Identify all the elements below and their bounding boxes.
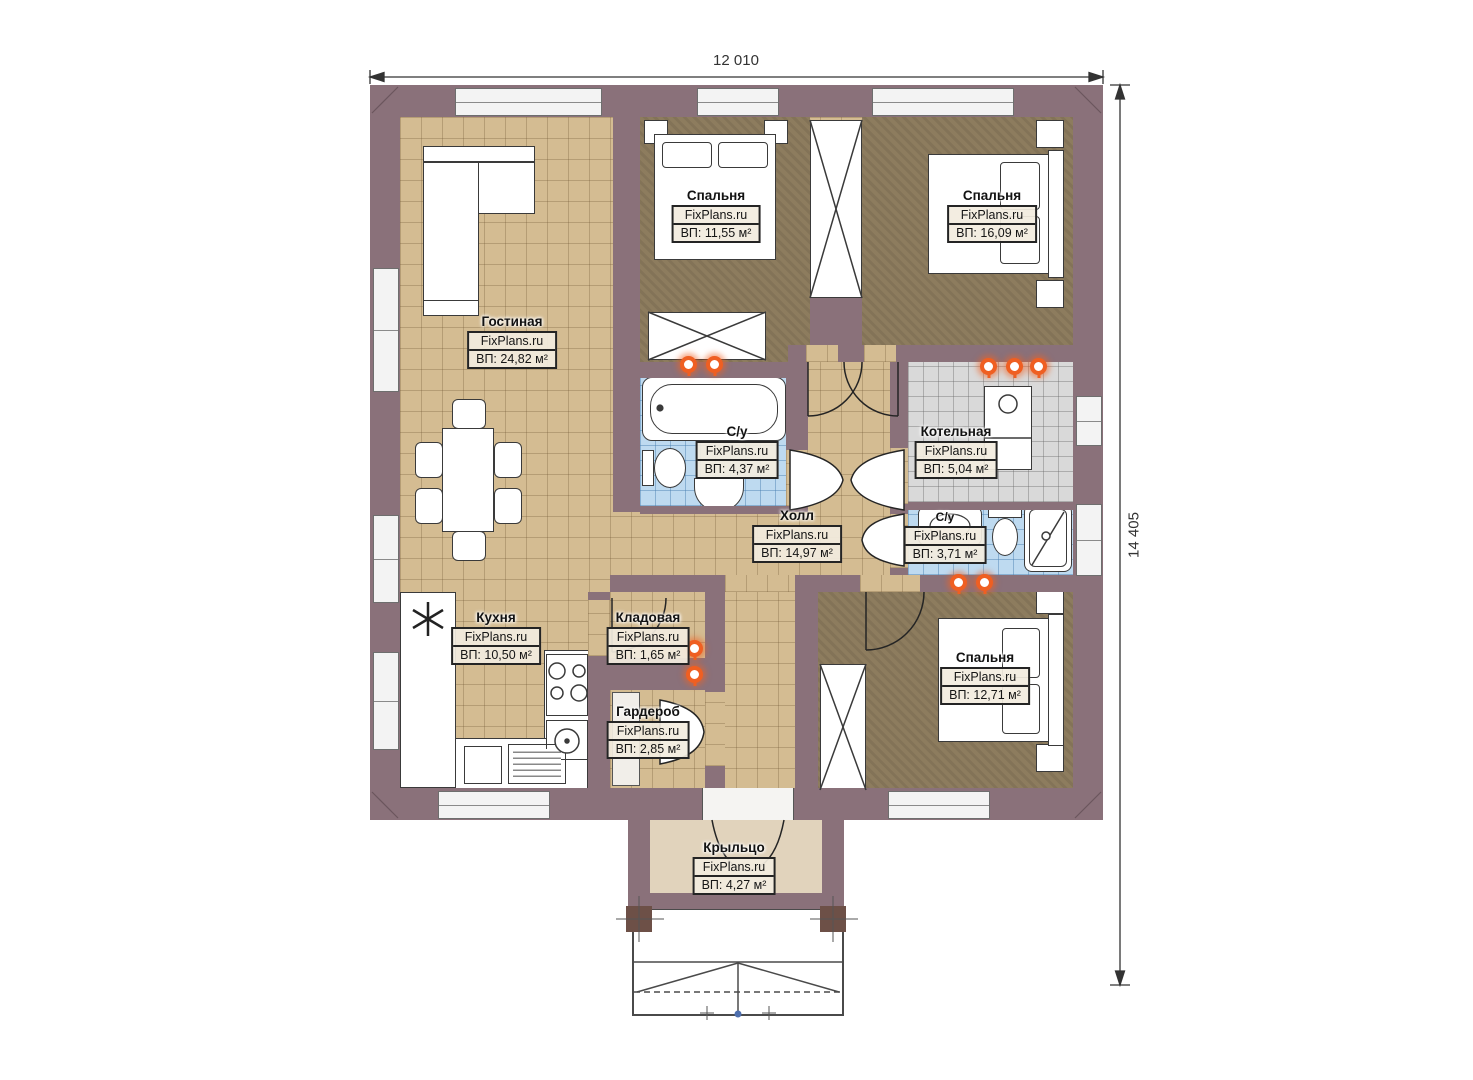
toilet-bowl (992, 518, 1018, 556)
room-name: Кладовая (607, 610, 690, 625)
room-info-box: FixPlans.ru ВП: 4,27 м² (693, 857, 776, 895)
ventilation-shaft (810, 120, 862, 298)
pillow (718, 142, 768, 168)
room-area: ВП: 14,97 м² (754, 543, 840, 561)
wall-exterior-right (1073, 85, 1103, 820)
flame-icon (976, 574, 993, 591)
room-area: ВП: 2,85 м² (609, 739, 688, 757)
wall-halltop-stub1 (788, 345, 806, 362)
pillow (662, 142, 712, 168)
room-area: ВП: 12,71 м² (942, 685, 1028, 703)
window-bedroom3-bottom (888, 791, 990, 819)
dimension-height-label: 14 405 (1126, 512, 1143, 558)
flame-icon (680, 356, 697, 373)
room-info-box: FixPlans.ru ВП: 10,50 м² (451, 627, 541, 665)
brand-watermark: FixPlans.ru (698, 443, 777, 459)
toilet-tank (642, 450, 654, 486)
room-label-bath1: С/у FixPlans.ru ВП: 4,37 м² (696, 424, 779, 479)
flame-icon (1006, 358, 1023, 375)
flame-icon (706, 356, 723, 373)
wall-bedroom3-top-left (818, 575, 860, 592)
wall-corridor-bedroom3 (795, 592, 818, 790)
room-name: Кухня (451, 610, 541, 625)
brand-watermark: FixPlans.ru (754, 527, 840, 543)
room-label-bedroom3: Спальня FixPlans.ru ВП: 12,71 м² (940, 650, 1030, 705)
chair-top (452, 399, 486, 429)
closet-bedroom3 (820, 664, 866, 790)
floor-plan-canvas: 12 010 14 405 Гостиная FixPlans.ru ВП: 2… (0, 0, 1473, 1080)
flame-icon (1030, 358, 1047, 375)
room-name: С/у (904, 510, 987, 524)
brand-watermark: FixPlans.ru (609, 723, 688, 739)
room-label-porch: Крыльцо FixPlans.ru ВП: 4,27 м² (693, 840, 776, 895)
room-area: ВП: 10,50 м² (453, 645, 539, 663)
room-name: Гостиная (467, 314, 557, 329)
closet-bedroom1 (648, 312, 766, 360)
room-name: Гардероб (607, 704, 690, 719)
window-kitchen-left (373, 652, 399, 750)
room-area: ВП: 24,82 м² (469, 349, 555, 367)
room-area: ВП: 5,04 м² (917, 459, 996, 477)
room-area: ВП: 4,27 м² (695, 875, 774, 893)
shower-inner (1029, 509, 1067, 567)
room-label-kitchen: Кухня FixPlans.ru ВП: 10,50 м² (451, 610, 541, 665)
room-name: С/у (696, 424, 779, 439)
chair-left-2 (415, 488, 443, 524)
chair-right-1 (494, 442, 522, 478)
room-info-box: FixPlans.ru ВП: 24,82 м² (467, 331, 557, 369)
brand-watermark: FixPlans.ru (674, 207, 759, 223)
wall-bedroom3-top-right (920, 575, 1073, 592)
window-bedroom2-top (872, 88, 1014, 116)
toilet-bowl (654, 448, 686, 488)
brand-watermark: FixPlans.ru (906, 528, 985, 544)
door-gap-bedroom3 (860, 575, 920, 592)
bed-headboard (1048, 614, 1064, 746)
room-info-box: FixPlans.ru ВП: 11,55 м² (672, 205, 761, 243)
window-living-top (455, 88, 602, 116)
wall-under-shaft (810, 298, 862, 345)
wall-storage-top (610, 575, 725, 592)
kitchen-counter-left (400, 592, 456, 788)
wall-bath1-hall-upper (786, 362, 808, 450)
porch-steps (632, 908, 844, 1016)
stove (546, 654, 588, 716)
sofa-backrest (423, 146, 535, 162)
wall-halltop-mullion (838, 345, 864, 362)
room-name: Спальня (672, 188, 761, 203)
chair-right-2 (494, 488, 522, 524)
room-info-box: FixPlans.ru ВП: 5,04 м² (915, 441, 998, 479)
room-name: Холл (752, 508, 842, 523)
room-info-box: FixPlans.ru ВП: 14,97 м² (752, 525, 842, 563)
room-label-hall: Холл FixPlans.ru ВП: 14,97 м² (752, 508, 842, 563)
door-gap-wardrobe (705, 692, 725, 766)
window-bath2-right (1076, 504, 1102, 576)
room-area: ВП: 11,55 м² (674, 223, 759, 241)
room-name: Спальня (947, 188, 1037, 203)
flame-icon (686, 666, 703, 683)
brand-watermark: FixPlans.ru (453, 629, 539, 645)
wall-boiler-bath2 (908, 502, 1073, 510)
room-name: Крыльцо (693, 840, 776, 855)
nightstand (1036, 120, 1064, 148)
room-info-box: FixPlans.ru ВП: 16,09 м² (947, 205, 1037, 243)
wall-kitchen-storage-stub (588, 592, 610, 600)
door-gap-bath1 (786, 450, 808, 506)
wall-boiler-hall-upper (890, 362, 908, 448)
window-boiler-right (1076, 396, 1102, 446)
brand-watermark: FixPlans.ru (609, 629, 688, 645)
wall-living-bedroom1 (613, 115, 640, 512)
room-name: Спальня (940, 650, 1030, 665)
nightstand (1036, 280, 1064, 308)
oven (464, 746, 502, 784)
room-label-boiler: Котельная FixPlans.ru ВП: 5,04 м² (915, 424, 998, 479)
room-name: Котельная (915, 424, 998, 439)
room-info-box: FixPlans.ru ВП: 3,71 м² (904, 526, 987, 564)
room-area: ВП: 3,71 м² (906, 544, 985, 562)
door-gap-entrance (702, 788, 794, 820)
porch-post-left (626, 906, 652, 932)
room-label-wardrobe: Гардероб FixPlans.ru ВП: 2,85 м² (607, 704, 690, 759)
room-info-box: FixPlans.ru ВП: 2,85 м² (607, 721, 690, 759)
brand-watermark: FixPlans.ru (917, 443, 996, 459)
room-info-box: FixPlans.ru ВП: 12,71 м² (940, 667, 1030, 705)
room-area: ВП: 1,65 м² (609, 645, 688, 663)
brand-watermark: FixPlans.ru (949, 207, 1035, 223)
room-area: ВП: 4,37 м² (698, 459, 777, 477)
window-kitchen-bottom (438, 791, 550, 819)
dishwasher (508, 744, 566, 784)
dimension-width-label: 12 010 (713, 52, 759, 69)
chair-left-1 (415, 442, 443, 478)
room-label-bedroom1: Спальня FixPlans.ru ВП: 11,55 м² (672, 188, 761, 243)
room-label-bath2: С/у FixPlans.ru ВП: 3,71 м² (904, 510, 987, 564)
door-gap-corridor (725, 575, 795, 592)
wall-porch-bottom (628, 893, 844, 909)
room-label-bedroom2: Спальня FixPlans.ru ВП: 16,09 м² (947, 188, 1037, 243)
flame-icon (980, 358, 997, 375)
porch-post-right (820, 906, 846, 932)
brand-watermark: FixPlans.ru (695, 859, 774, 875)
nightstand (1036, 744, 1064, 772)
sofa-seat-vertical (423, 162, 479, 308)
window-bedroom1-top (697, 88, 779, 116)
brand-watermark: FixPlans.ru (469, 333, 555, 349)
door-gap-bedroom1 (806, 345, 838, 362)
wall-corridor-left-lower (705, 766, 725, 790)
brand-watermark: FixPlans.ru (942, 669, 1028, 685)
chair-bottom (452, 531, 486, 561)
window-living-left2 (373, 515, 399, 603)
room-area: ВП: 16,09 м² (949, 223, 1035, 241)
room-label-living: Гостиная FixPlans.ru ВП: 24,82 м² (467, 314, 557, 369)
room-label-storage: Кладовая FixPlans.ru ВП: 1,65 м² (607, 610, 690, 665)
bed-headboard (1048, 150, 1064, 278)
flame-icon (950, 574, 967, 591)
room-info-box: FixPlans.ru ВП: 4,37 м² (696, 441, 779, 479)
window-living-left (373, 268, 399, 392)
door-gap-bedroom2 (864, 345, 896, 362)
room-info-box: FixPlans.ru ВП: 1,65 м² (607, 627, 690, 665)
door-gap-boiler (890, 448, 908, 504)
dining-table (442, 428, 494, 532)
wall-corridor-right-top (795, 575, 818, 592)
